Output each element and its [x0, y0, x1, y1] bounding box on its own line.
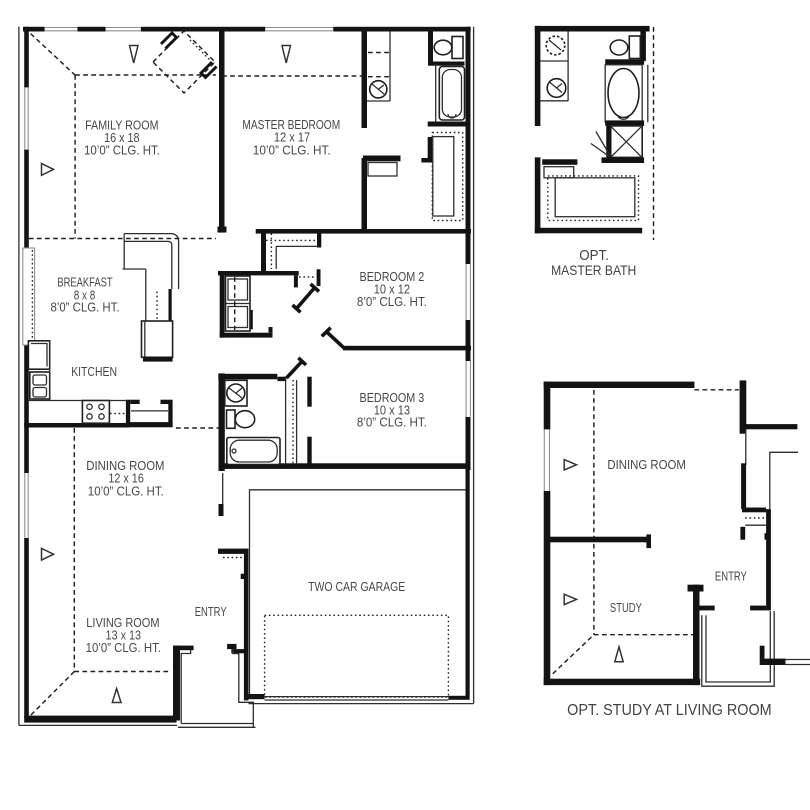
svg-text:8’0” CLG. HT.: 8’0” CLG. HT. — [357, 295, 427, 309]
svg-text:10’0” CLG. HT.: 10’0” CLG. HT. — [84, 144, 160, 158]
svg-text:12 x 17: 12 x 17 — [274, 131, 310, 145]
svg-text:ENTRY: ENTRY — [715, 569, 748, 583]
svg-text:OPT. STUDY AT LIVING ROOM: OPT. STUDY AT LIVING ROOM — [567, 702, 772, 719]
svg-text:KITCHEN: KITCHEN — [71, 365, 117, 379]
svg-text:10’0” CLG. HT.: 10’0” CLG. HT. — [88, 484, 164, 498]
svg-text:8’0” CLG. HT.: 8’0” CLG. HT. — [357, 416, 427, 430]
svg-text:MASTER BATH: MASTER BATH — [551, 262, 636, 278]
svg-text:TWO CAR GARAGE: TWO CAR GARAGE — [308, 580, 405, 594]
svg-text:ENTRY: ENTRY — [195, 605, 228, 619]
svg-text:DINING ROOM: DINING ROOM — [607, 458, 686, 472]
svg-text:STUDY: STUDY — [610, 601, 642, 615]
svg-text:10’0” CLG. HT.: 10’0” CLG. HT. — [253, 143, 331, 157]
svg-text:10’0” CLG. HT.: 10’0” CLG. HT. — [86, 641, 161, 655]
svg-text:8’0” CLG. HT.: 8’0” CLG. HT. — [50, 301, 119, 315]
